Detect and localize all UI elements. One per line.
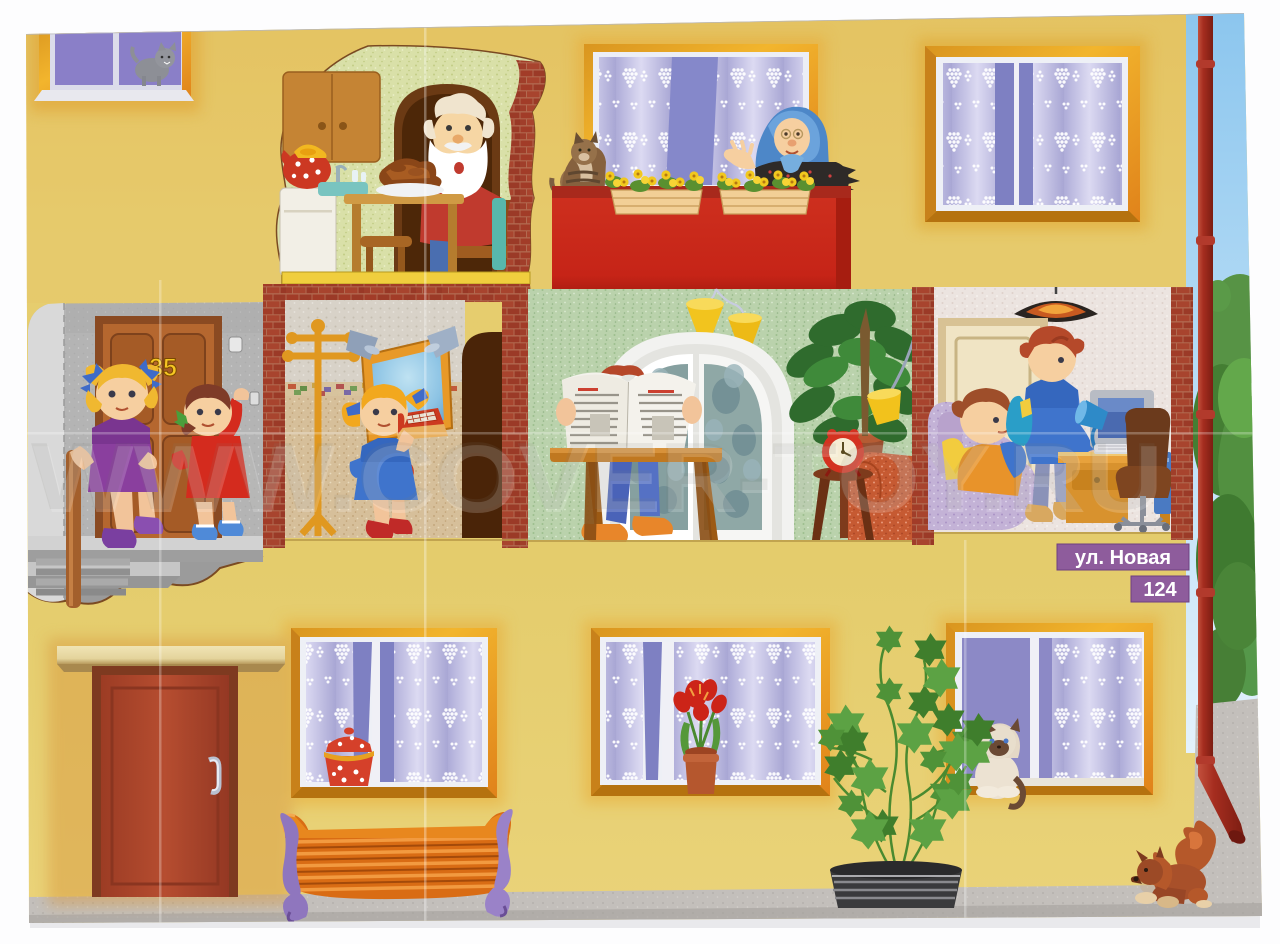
svg-text:ул. Новая: ул. Новая: [1075, 547, 1171, 569]
svg-text:WWW.COVER-TOY.RU: WWW.COVER-TOY.RU: [31, 423, 1161, 530]
svg-text:124: 124: [1143, 579, 1177, 601]
